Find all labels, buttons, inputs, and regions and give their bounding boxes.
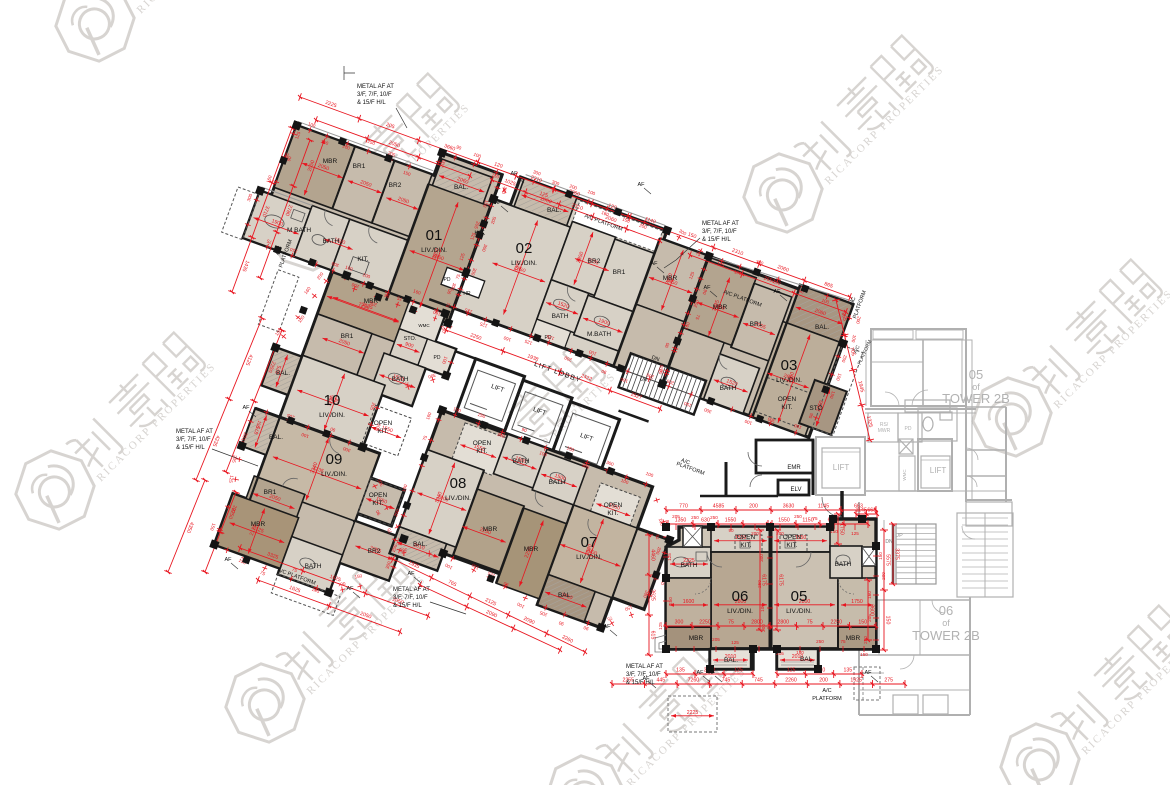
svg-text:STO: STO [809,405,822,412]
svg-text:75: 75 [840,639,846,644]
svg-text:07: 07 [581,534,598,551]
svg-text:5575: 5575 [885,554,891,566]
svg-text:BR1: BR1 [353,163,366,170]
svg-text:& 15/F H/L: & 15/F H/L [393,603,422,609]
svg-text:BAL.: BAL. [547,207,561,214]
svg-text:4460: 4460 [650,549,656,561]
svg-text:3630: 3630 [783,504,795,510]
svg-text:& 15/F H/L: & 15/F H/L [626,680,655,686]
svg-text:75: 75 [812,516,818,521]
svg-text:LIV./DIN.: LIV./DIN. [321,471,347,478]
svg-text:of: of [942,618,950,628]
svg-text:160: 160 [399,547,407,552]
svg-text:AF: AF [650,261,658,267]
svg-text:TOWER 2B: TOWER 2B [942,391,1010,406]
svg-text:200: 200 [776,531,784,536]
svg-text:7260: 7260 [688,678,700,684]
svg-text:BAL.: BAL. [800,656,814,663]
svg-text:OPEN: OPEN [778,396,797,403]
svg-text:06: 06 [732,588,749,605]
svg-text:200: 200 [751,531,759,536]
svg-text:630: 630 [701,518,710,524]
svg-text:BATH: BATH [513,458,530,465]
svg-text:LIV./DIN.: LIV./DIN. [319,412,345,419]
svg-text:MBR: MBR [524,546,539,553]
svg-text:A/C: A/C [822,688,831,694]
svg-text:205: 205 [867,614,872,622]
svg-text:HR: HR [463,291,471,297]
svg-text:01: 01 [426,227,443,244]
svg-text:160: 160 [867,591,872,599]
svg-text:135: 135 [844,668,853,674]
svg-text:WMC: WMC [418,323,430,328]
svg-text:MBR: MBR [483,526,498,533]
svg-text:4585: 4585 [713,504,725,510]
svg-text:BAL.: BAL. [413,541,427,548]
svg-text:LIV./DIN.: LIV./DIN. [786,608,812,615]
svg-text:205: 205 [672,514,680,519]
svg-text:05: 05 [969,367,983,382]
svg-text:2225: 2225 [687,710,699,716]
svg-text:KIT.: KIT. [740,542,751,549]
svg-text:BATH: BATH [835,561,852,568]
svg-text:1550: 1550 [778,518,790,524]
svg-text:BR1: BR1 [341,333,354,340]
svg-text:90: 90 [728,528,734,533]
svg-text:250: 250 [816,639,824,644]
svg-text:TOWER 2B: TOWER 2B [912,628,980,643]
svg-text:250: 250 [691,515,699,520]
svg-text:LIV./DIN.: LIV./DIN. [576,554,602,561]
svg-text:125: 125 [658,622,663,630]
svg-text:& 15/F H/L: & 15/F H/L [357,100,386,106]
svg-text:3/F, 7/F, 10/F: 3/F, 7/F, 10/F [176,437,211,443]
svg-text:STO.: STO. [404,336,417,342]
svg-text:250: 250 [710,515,718,520]
svg-text:KIT.: KIT. [372,500,383,507]
svg-text:WMC: WMC [902,469,907,481]
svg-text:KIT.: KIT. [786,542,797,549]
svg-text:125: 125 [667,553,672,561]
svg-text:AF: AF [242,405,250,411]
svg-text:2250: 2250 [699,620,711,626]
svg-text:445: 445 [657,678,666,684]
svg-text:LIV./DIN.: LIV./DIN. [511,260,537,267]
svg-text:75: 75 [807,620,813,626]
svg-text:MBR: MBR [323,158,338,165]
svg-text:BATH: BATH [323,238,340,245]
svg-text:3375: 3375 [894,548,900,560]
svg-text:AF: AF [696,670,704,676]
svg-text:LIFT: LIFT [930,466,947,475]
svg-text:MBR: MBR [713,304,728,311]
svg-text:100: 100 [760,604,765,612]
svg-text:200: 200 [881,572,886,580]
svg-text:125: 125 [787,668,796,674]
svg-text:BAL.: BAL. [454,184,468,191]
svg-text:1600: 1600 [683,599,695,605]
svg-text:1550: 1550 [725,518,737,524]
svg-text:08: 08 [450,475,467,492]
svg-text:EMR: EMR [787,465,801,471]
svg-text:250: 250 [863,636,868,644]
svg-text:BATH: BATH [681,562,698,569]
svg-text:200: 200 [761,624,766,632]
svg-text:AF: AF [510,171,518,177]
svg-text:AF: AF [224,557,232,563]
svg-text:75: 75 [655,534,660,540]
svg-text:LIFT: LIFT [833,463,850,472]
svg-text:AF: AF [407,571,415,577]
svg-text:BR1: BR1 [750,321,763,328]
svg-text:09: 09 [326,451,343,468]
svg-text:OPEN: OPEN [369,492,388,499]
svg-text:LIV./DIN.: LIV./DIN. [421,247,447,254]
svg-text:OPEN: OPEN [604,502,623,509]
svg-text:250: 250 [668,597,673,605]
svg-text:METAL AF AT: METAL AF AT [393,587,430,593]
svg-text:275: 275 [884,678,893,684]
svg-text:1145: 1145 [856,508,867,514]
svg-text:BR2: BR2 [588,258,601,265]
svg-text:AF: AF [637,182,645,188]
svg-text:LIV./DIN.: LIV./DIN. [776,377,802,384]
svg-text:METAL AF AT: METAL AF AT [357,84,394,90]
svg-text:BAL.: BAL. [815,324,829,331]
svg-text:MBR: MBR [251,521,266,528]
svg-text:MBR: MBR [689,635,704,642]
svg-text:06: 06 [939,603,953,618]
svg-text:MWR: MWR [878,428,891,434]
svg-text:1750: 1750 [851,599,863,605]
svg-text:OPEN: OPEN [473,440,492,447]
svg-text:125: 125 [851,531,859,536]
svg-text:OPEN: OPEN [783,534,802,541]
svg-text:BAL.: BAL. [724,657,738,664]
svg-text:M.BATH: M.BATH [587,331,611,338]
svg-text:& 15/F H/L: & 15/F H/L [702,237,731,243]
svg-text:3/F, 7/F, 10/F: 3/F, 7/F, 10/F [357,92,392,98]
svg-text:200: 200 [749,504,758,510]
svg-text:205: 205 [712,637,720,642]
svg-text:KIT.: KIT. [781,404,792,411]
svg-text:BATH: BATH [549,479,566,486]
svg-text:05: 05 [791,588,808,605]
svg-text:METAL AF AT: METAL AF AT [176,429,213,435]
svg-text:METAL AF AT: METAL AF AT [702,221,739,227]
svg-text:UP: UP [895,533,903,539]
svg-text:M BATH: M BATH [287,227,311,234]
svg-text:150: 150 [858,620,867,626]
svg-text:200: 200 [819,678,828,684]
svg-text:3/F, 7/F, 10/F: 3/F, 7/F, 10/F [393,595,428,601]
svg-text:KIT.: KIT. [357,256,368,263]
svg-text:3/F, 7/F, 10/F: 3/F, 7/F, 10/F [702,229,737,235]
svg-text:160: 160 [796,650,804,655]
svg-text:02: 02 [516,240,533,257]
svg-text:150: 150 [860,652,868,657]
svg-text:& 15/F H/L: & 15/F H/L [176,445,205,451]
svg-text:03: 03 [781,357,798,374]
svg-text:75: 75 [728,620,734,626]
svg-text:PD: PD [434,355,441,361]
svg-text:BAL.: BAL. [558,592,572,599]
svg-text:PD: PD [444,277,451,283]
svg-text:6175: 6175 [778,574,784,586]
svg-text:BATH: BATH [552,313,569,320]
svg-text:AF: AF [642,676,650,682]
svg-text:BAL.: BAL. [276,370,290,377]
svg-text:250: 250 [757,580,762,588]
svg-text:BR1: BR1 [613,269,626,276]
svg-text:300: 300 [759,554,764,562]
svg-text:PD: PD [905,426,912,432]
svg-text:LIV./DIN.: LIV./DIN. [727,608,753,615]
svg-text:2260: 2260 [785,678,797,684]
svg-text:125: 125 [734,668,743,674]
svg-text:615: 615 [650,631,656,640]
svg-text:135: 135 [676,668,685,674]
svg-text:745: 745 [754,678,763,684]
svg-text:663: 663 [867,508,876,514]
svg-text:BR2: BR2 [389,182,402,189]
svg-text:250: 250 [794,514,802,519]
svg-text:METAL AF AT: METAL AF AT [626,664,663,670]
svg-text:ELV: ELV [791,487,802,493]
svg-text:BATH: BATH [305,563,322,570]
svg-text:LIV./DIN.: LIV./DIN. [445,495,471,502]
svg-text:BAL.: BAL. [269,434,283,441]
svg-text:BATH: BATH [720,385,737,392]
svg-text:1145: 1145 [818,504,829,510]
svg-text:BR2: BR2 [368,548,381,555]
svg-text:KIT.: KIT. [607,510,618,517]
svg-text:10: 10 [324,392,341,409]
svg-text:150: 150 [885,616,891,625]
svg-text:KIT.: KIT. [476,448,487,455]
svg-text:1925: 1925 [850,678,862,684]
svg-text:2800: 2800 [777,620,789,626]
svg-text:PLATFORM: PLATFORM [812,696,842,702]
svg-text:AF: AF [346,586,354,592]
svg-text:MBR: MBR [846,635,861,642]
svg-text:300: 300 [675,620,684,626]
svg-text:770: 770 [679,504,688,510]
svg-text:BR1: BR1 [264,489,277,496]
svg-text:745: 745 [722,678,731,684]
svg-text:MBR: MBR [663,275,678,282]
svg-text:2250: 2250 [830,620,842,626]
svg-text:AF: AF [864,670,872,676]
svg-text:AF: AF [773,289,781,295]
svg-text:150: 150 [878,552,883,560]
svg-text:1750: 1750 [839,523,845,535]
svg-text:125: 125 [731,640,739,645]
